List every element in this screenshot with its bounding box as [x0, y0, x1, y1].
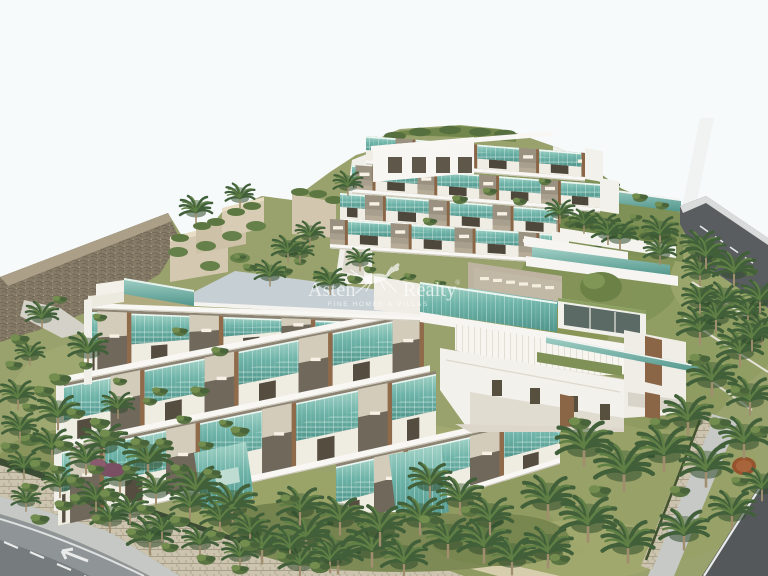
svg-text:Realty: Realty: [403, 279, 456, 301]
svg-text:Asten: Asten: [308, 279, 356, 301]
svg-text:®: ®: [455, 279, 461, 287]
svg-text:FINE HOMES & VILLAS: FINE HOMES & VILLAS: [328, 301, 429, 308]
